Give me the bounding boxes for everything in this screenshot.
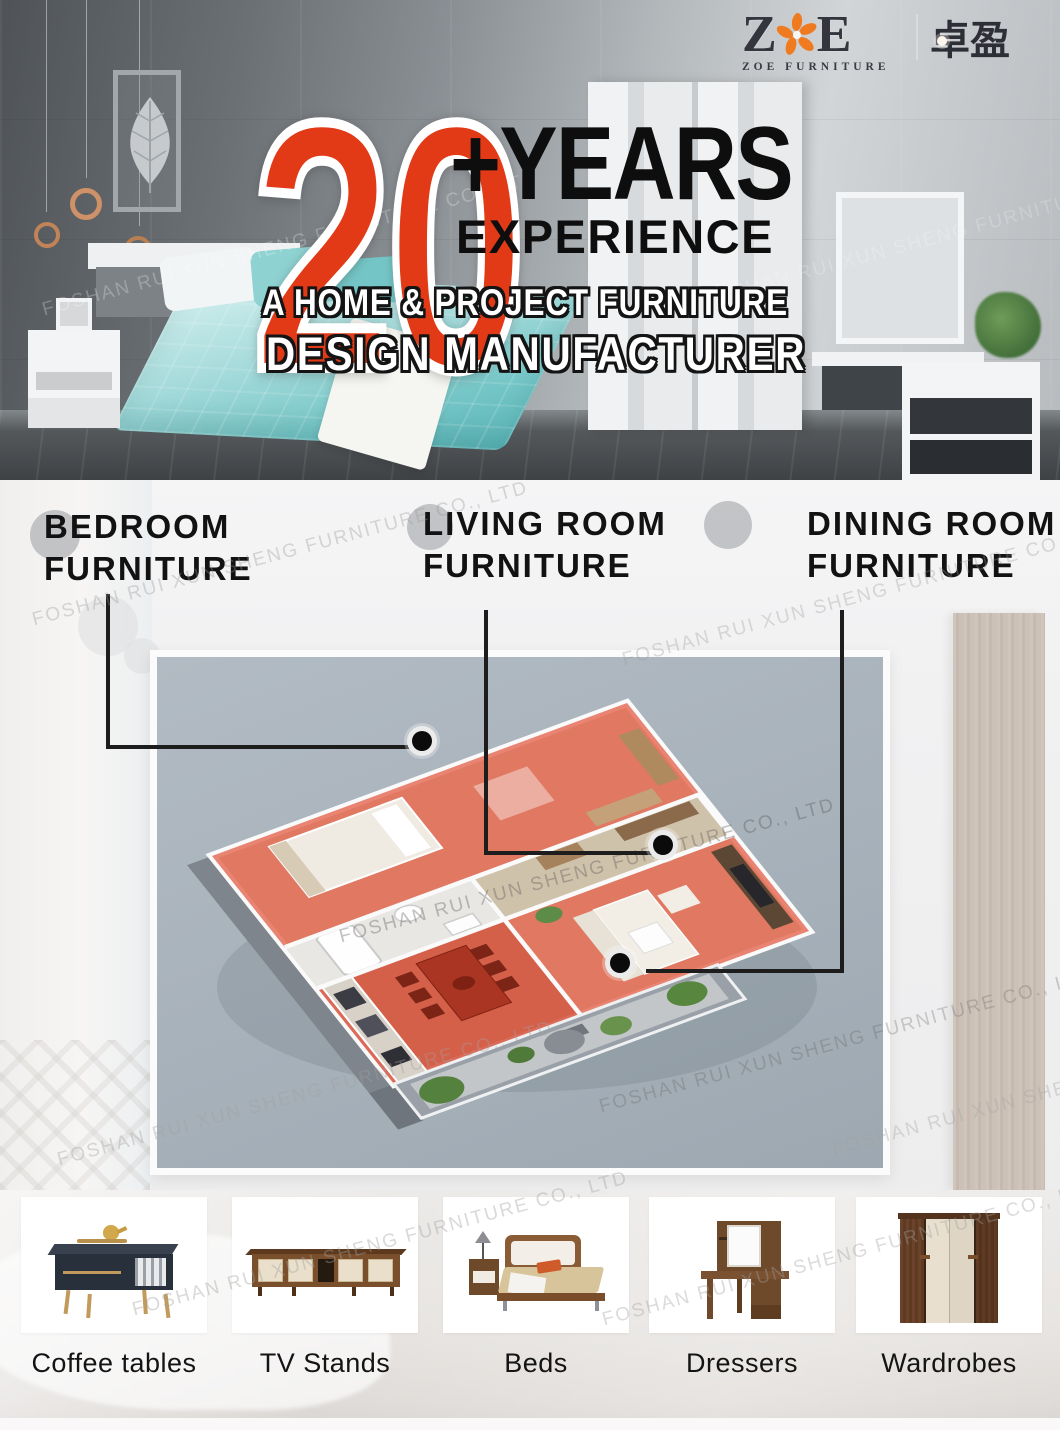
label-line2: FURNITURE bbox=[807, 545, 1056, 587]
bottom-edge bbox=[0, 1418, 1060, 1430]
category-label-tv-stands[interactable]: TV Stands bbox=[232, 1348, 418, 1379]
label-bedroom-furniture: BEDROOM FURNITURE bbox=[44, 506, 253, 590]
pendant-cord bbox=[86, 0, 87, 178]
experience-text: EXPERIENCE bbox=[456, 212, 774, 262]
logo-flower-icon bbox=[775, 13, 819, 57]
pendant-cord bbox=[46, 0, 47, 212]
category-card-beds[interactable] bbox=[443, 1197, 629, 1333]
floorplan-section: BEDROOM FURNITURE LIVING ROOM FURNITURE … bbox=[0, 480, 1060, 1190]
side-cabinet bbox=[902, 362, 1040, 480]
connector-line-bedroom bbox=[106, 594, 110, 749]
logo-letter-e: E bbox=[817, 12, 852, 58]
category-card-tv-stands[interactable] bbox=[232, 1197, 418, 1333]
plant bbox=[975, 292, 1041, 358]
floorplan-image: FOSHAN RUI XUN SHENG FURNITURE CO., LTD … bbox=[150, 650, 890, 1175]
photo-frame bbox=[56, 298, 92, 330]
connector-line-living bbox=[484, 610, 488, 855]
logo-cn-right: 盈 bbox=[970, 8, 1010, 66]
label-line2: FURNITURE bbox=[44, 548, 253, 590]
ring-pendant-light bbox=[34, 222, 60, 248]
plaid-pillow-blur bbox=[0, 1040, 150, 1190]
logo-zoe: Z E ZOE FURNITURE bbox=[742, 12, 902, 73]
connector-line-living bbox=[484, 851, 656, 855]
tagline-line1: A HOME & PROJECT FURNITURE bbox=[262, 282, 788, 324]
logo-orange-dot bbox=[937, 36, 947, 46]
logo-chinese: 卓 盈 bbox=[930, 12, 1010, 62]
brand-logo: Z E ZOE FURNITURE bbox=[742, 12, 1047, 78]
label-living-room-furniture: LIVING ROOM FURNITURE bbox=[423, 503, 667, 587]
category-strip: Coffee tables TV Stands bbox=[0, 1190, 1060, 1430]
ring-pendant-light bbox=[70, 188, 102, 220]
category-label-wardrobes[interactable]: Wardrobes bbox=[856, 1348, 1042, 1379]
leaf-wall-art bbox=[113, 70, 181, 212]
label-dining-room-furniture: DINING ROOM FURNITURE bbox=[807, 503, 1056, 587]
floorplan-render bbox=[157, 657, 883, 1168]
logo-cn-left: 卓 bbox=[930, 8, 970, 66]
label-line1: BEDROOM bbox=[44, 506, 253, 548]
connector-line-bedroom bbox=[106, 745, 425, 749]
tagline-line2: DESIGN MANUFACTURER bbox=[266, 326, 806, 381]
logo-divider bbox=[916, 14, 918, 60]
hero-section: FOSHAN RUI XUN SHENG FURNITURE CO., LTD … bbox=[0, 0, 1060, 480]
plus-years-text: +YEARS bbox=[450, 112, 792, 216]
label-line1: LIVING ROOM bbox=[423, 503, 667, 545]
label-line1: DINING ROOM bbox=[807, 503, 1056, 545]
label-circle bbox=[704, 501, 752, 549]
hotspot-living-room[interactable] bbox=[648, 830, 678, 860]
vanity-mirror bbox=[836, 192, 964, 344]
category-card-wardrobes[interactable] bbox=[856, 1197, 1042, 1333]
category-label-beds[interactable]: Beds bbox=[443, 1348, 629, 1379]
hotspot-dining-room[interactable] bbox=[605, 948, 635, 978]
category-card-coffee-tables[interactable] bbox=[21, 1197, 207, 1333]
logo-letter-z: Z bbox=[742, 12, 777, 58]
category-card-dressers[interactable] bbox=[649, 1197, 835, 1333]
label-line2: FURNITURE bbox=[423, 545, 667, 587]
category-label-coffee-tables[interactable]: Coffee tables bbox=[21, 1348, 207, 1379]
connector-line-dining bbox=[840, 610, 844, 973]
banner-page: FOSHAN RUI XUN SHENG FURNITURE CO., LTD … bbox=[0, 0, 1060, 1430]
category-label-dressers[interactable]: Dressers bbox=[649, 1348, 835, 1379]
logo-subtitle: ZOE FURNITURE bbox=[742, 61, 902, 73]
connector-line-dining bbox=[646, 969, 844, 973]
leaf-icon bbox=[124, 93, 176, 197]
hotspot-bedroom[interactable] bbox=[407, 726, 437, 756]
nightstand bbox=[28, 330, 120, 428]
background-wood-panel bbox=[953, 613, 1045, 1190]
